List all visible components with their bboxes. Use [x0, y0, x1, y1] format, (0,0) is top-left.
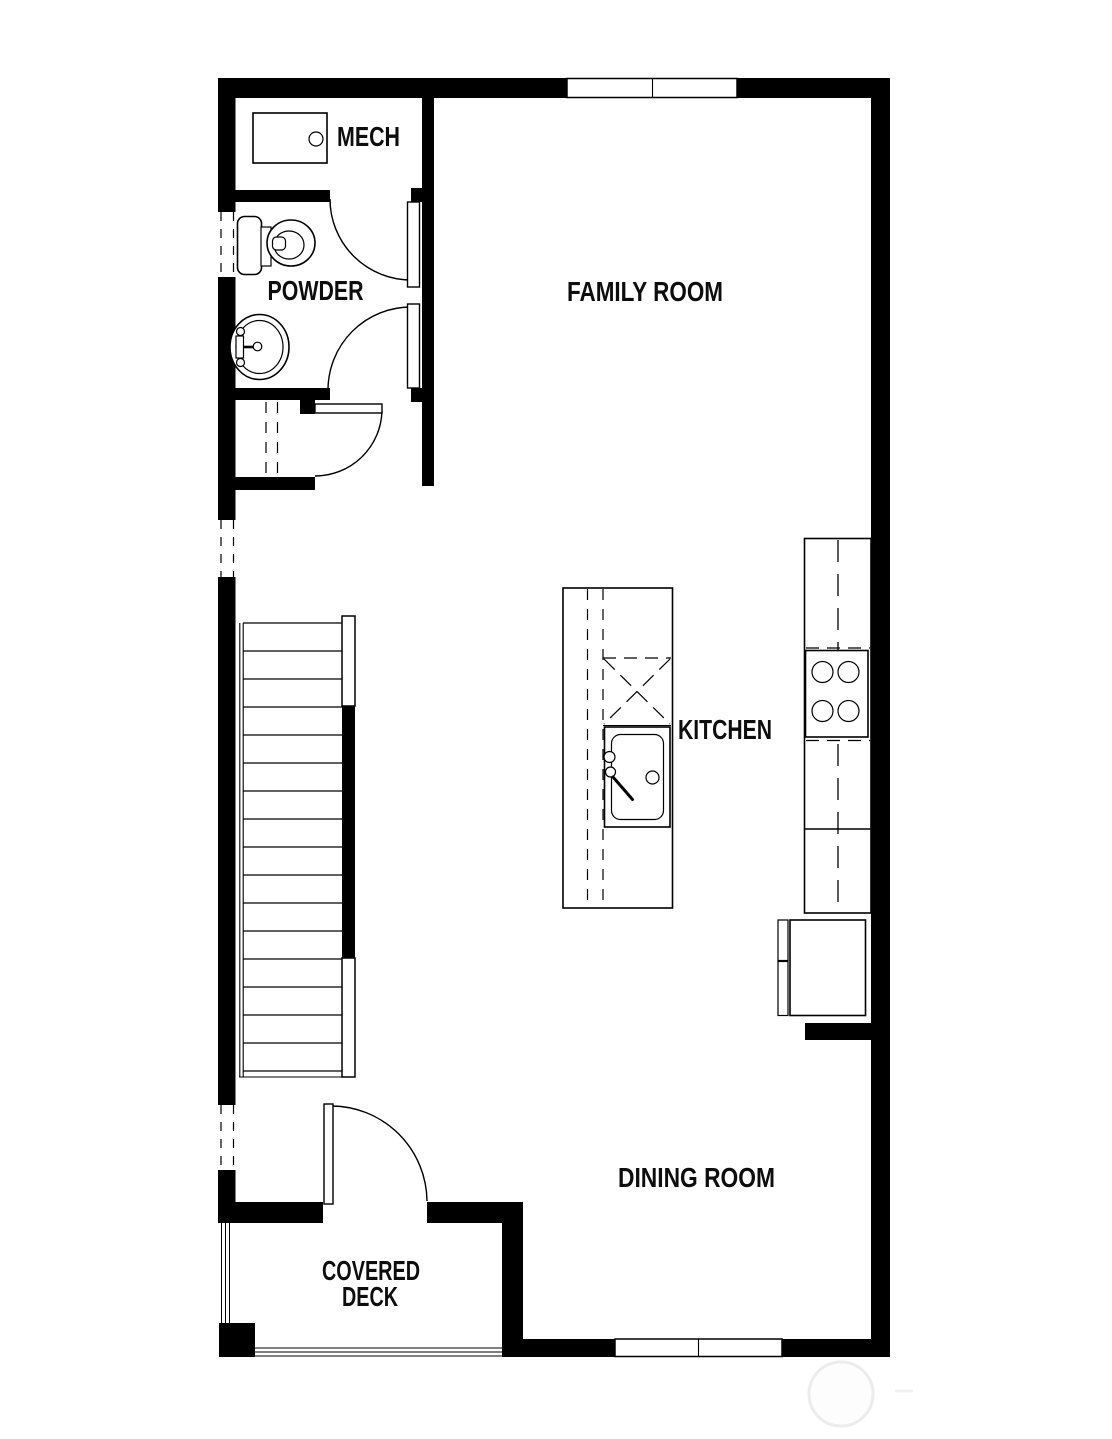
room-label-mech: MECH: [337, 121, 400, 152]
kitchen-island: [563, 588, 673, 908]
stairs: [239, 616, 355, 1077]
powder-hall-door: [328, 304, 420, 390]
top-window: [567, 79, 737, 98]
left-window-stair: [221, 520, 234, 577]
interior-walls: [228, 98, 890, 1040]
bottom-window: [615, 1339, 782, 1357]
watermark: [809, 1362, 913, 1426]
mech-powder-door: [330, 199, 420, 287]
room-label-powder: POWDER: [268, 275, 364, 306]
burner: [812, 662, 833, 683]
mech-equipment: [253, 113, 327, 163]
room-label-covered-deck-line2: DECK: [342, 1281, 398, 1312]
burner: [838, 662, 859, 683]
toilet: [238, 217, 316, 275]
floor-plan-drawing: MECH POWDER FAMILY ROOM KITCHEN DINING R…: [0, 0, 1112, 1439]
doors: [315, 199, 427, 1204]
under-stair-closet: [266, 402, 278, 477]
room-label-dining-room: DINING ROOM: [618, 1162, 775, 1193]
floor-plan-page: MECH POWDER FAMILY ROOM KITCHEN DINING R…: [0, 0, 1112, 1439]
burner: [838, 701, 859, 722]
room-label-family-room: FAMILY ROOM: [567, 276, 723, 307]
range-stove: [806, 651, 869, 738]
sink-drain: [646, 771, 659, 784]
exterior-walls: [218, 78, 890, 1357]
kitchen-sink: [604, 727, 670, 827]
stair-treads: [243, 623, 342, 1071]
refrigerator: [778, 920, 866, 1016]
left-window-entry: [221, 1105, 234, 1170]
room-label-kitchen: KITCHEN: [678, 714, 772, 745]
stair-rail-top: [342, 616, 355, 706]
burner: [812, 701, 833, 722]
closet-door: [315, 404, 382, 476]
powder-sink: [230, 315, 289, 380]
left-window-powder: [221, 212, 234, 277]
stair-rail-bottom: [342, 958, 355, 1077]
range-counter: [805, 539, 872, 914]
deck-entry-door: [324, 1104, 427, 1204]
